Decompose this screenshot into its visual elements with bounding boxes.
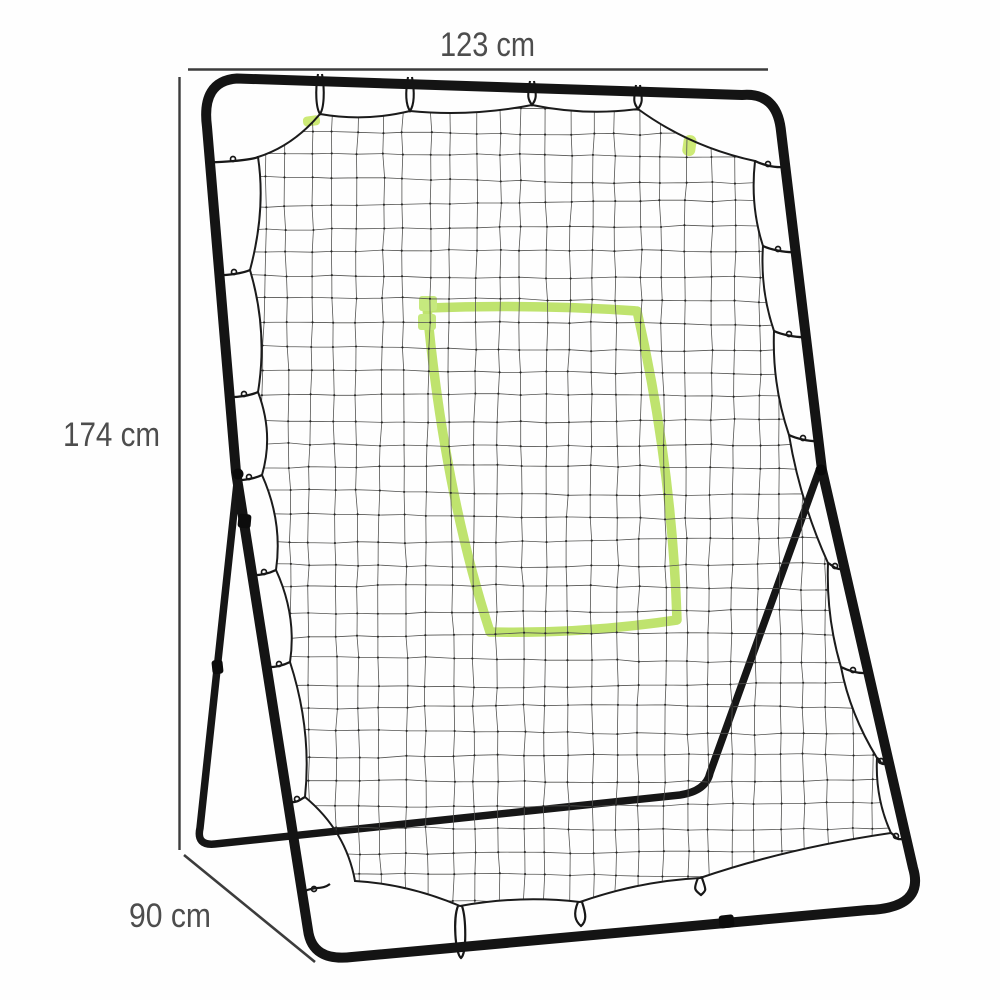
svg-text:123 cm: 123 cm bbox=[440, 26, 535, 64]
svg-text:90 cm: 90 cm bbox=[129, 897, 211, 935]
svg-text:174 cm: 174 cm bbox=[63, 416, 160, 454]
